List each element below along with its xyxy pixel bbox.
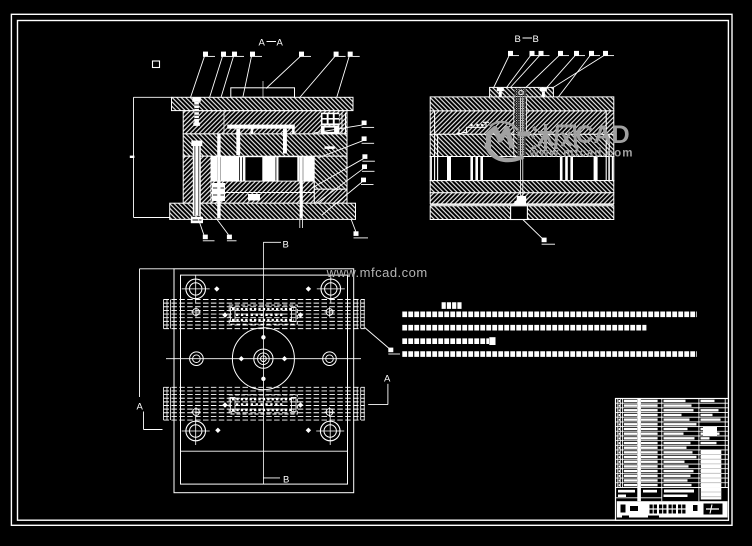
svg-text:A: A xyxy=(137,402,144,413)
svg-text:CAD: CAD xyxy=(576,121,630,149)
svg-text:www.mfcad.com: www.mfcad.com xyxy=(326,265,428,280)
svg-text:B: B xyxy=(283,475,289,486)
svg-text:B: B xyxy=(533,34,539,45)
svg-text:www.mfcad.com: www.mfcad.com xyxy=(529,148,634,160)
svg-text:B: B xyxy=(283,240,289,251)
svg-text:A: A xyxy=(277,38,284,49)
svg-text:B: B xyxy=(515,34,521,45)
svg-text:A: A xyxy=(259,38,266,49)
svg-text:A: A xyxy=(384,374,391,385)
